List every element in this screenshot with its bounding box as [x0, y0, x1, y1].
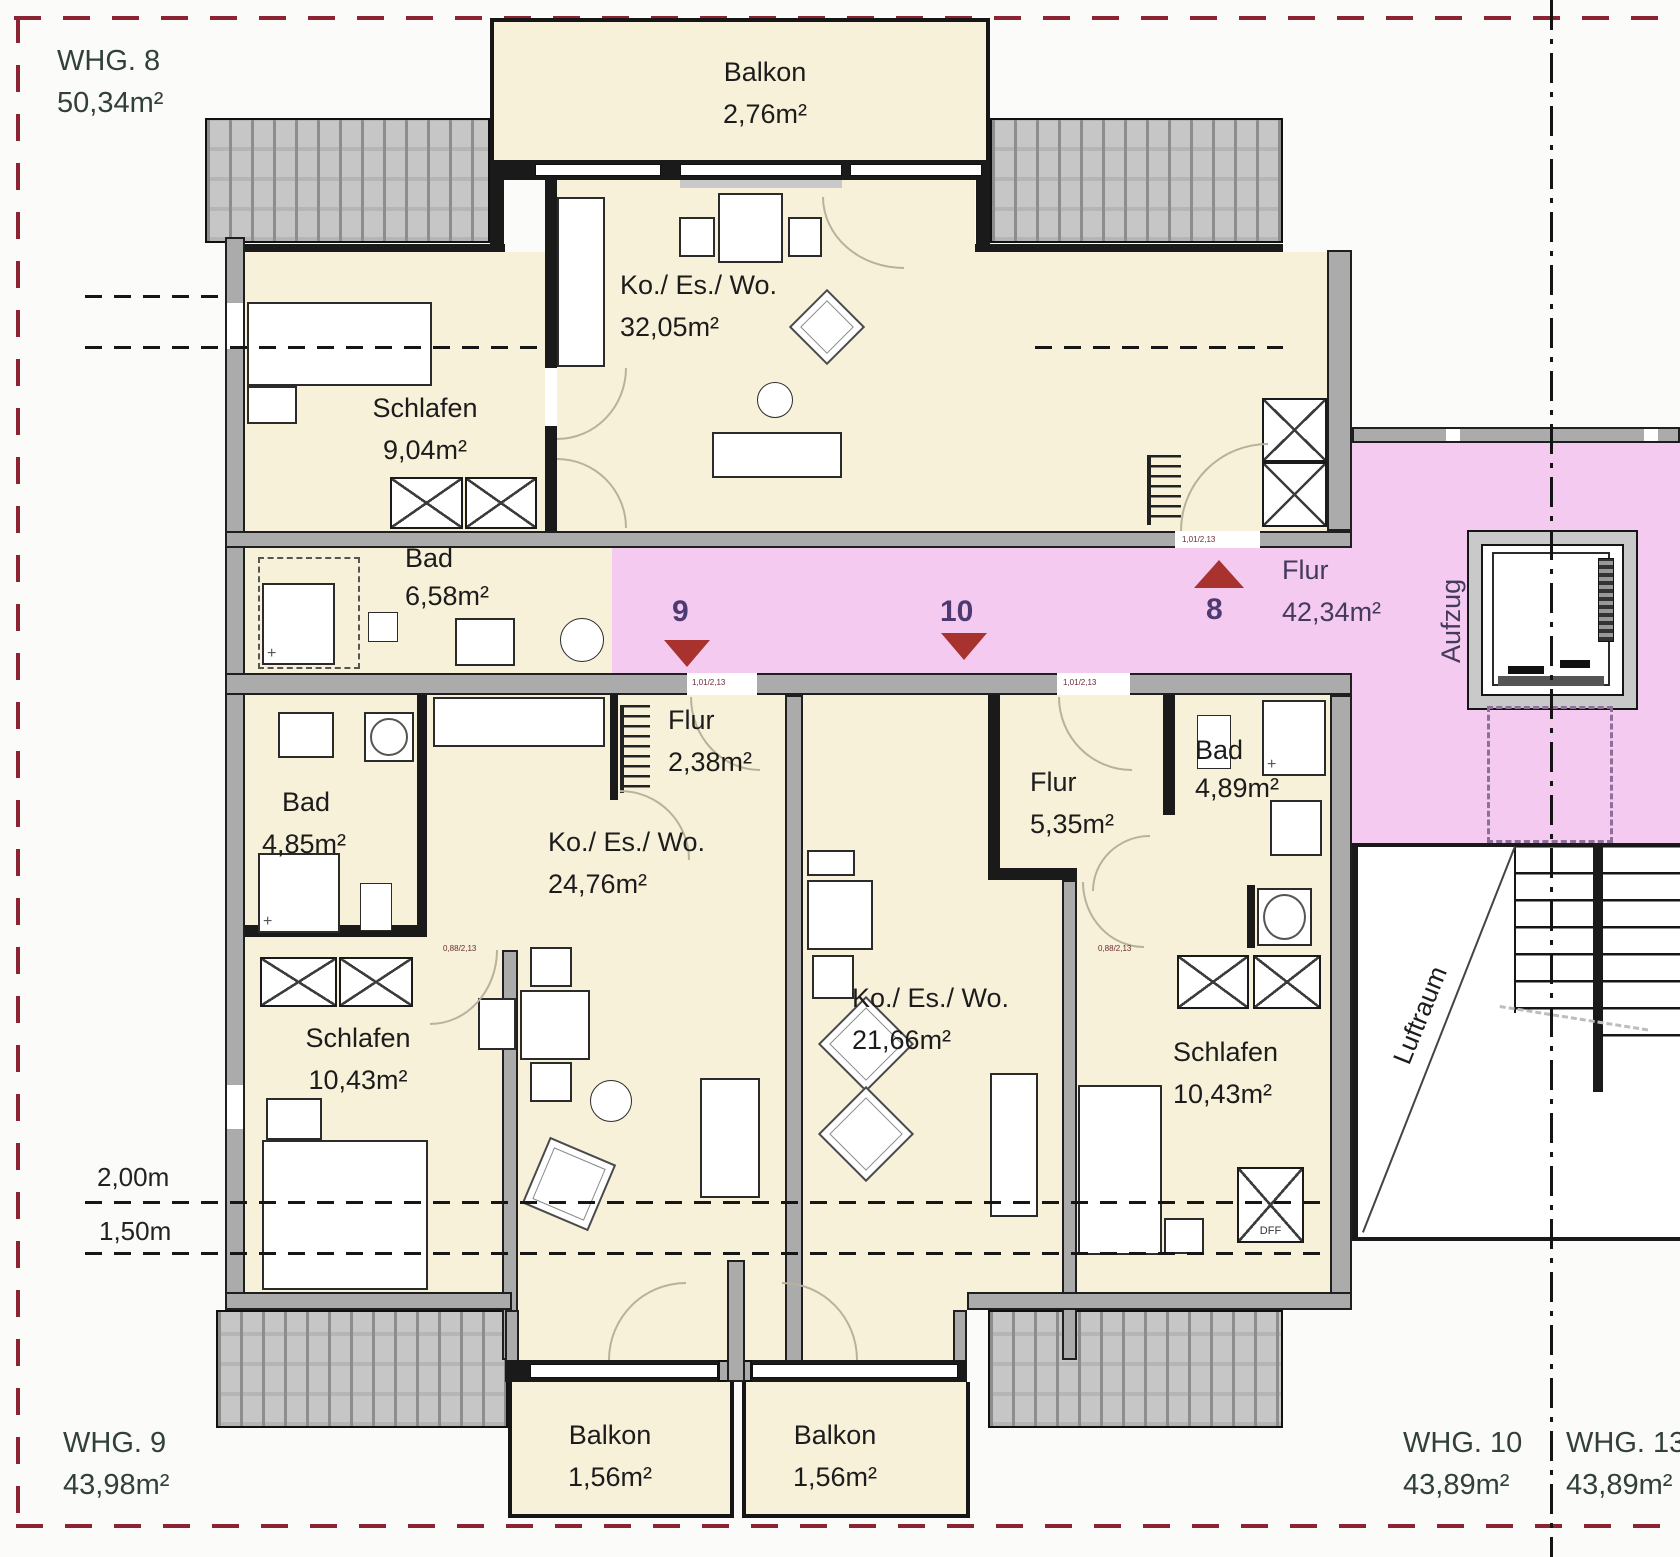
bottom-wall-right: [967, 1292, 1352, 1310]
wall-flur10-bottom: [988, 868, 1077, 880]
whg13-name: WHG. 13: [1566, 1422, 1680, 1464]
bed-whg8: [247, 302, 432, 386]
unit-marker-whg9: 9: [672, 595, 689, 629]
cabinet-whg8-2: [1262, 462, 1327, 527]
roof-hatch-bottom-left: [216, 1310, 508, 1428]
balkon-whg8-area: 2,76m²: [665, 94, 865, 136]
left-wall-window-1: [227, 303, 243, 349]
wall-koeswo10-flur10: [988, 695, 1000, 880]
left-wall-window-2: [227, 1085, 243, 1129]
flur-whg10-area: 5,35m²: [1030, 804, 1114, 846]
kitchen-block-whg10-2: [807, 880, 873, 950]
kitchen-counter-whg8: [557, 197, 605, 367]
koeswo-whg8-name: Ko./ Es./ Wo.: [620, 265, 777, 307]
schlafen-whg10-area: 10,43m²: [1173, 1074, 1278, 1116]
schlafen-whg9-label: Schlafen 10,43m²: [258, 1018, 458, 1102]
wall-flur10-bad10: [1163, 695, 1175, 815]
whg8-label: WHG. 8 50,34m²: [57, 40, 163, 124]
whg8-balcony-door-sill: [680, 180, 842, 188]
sofa-whg9: [700, 1078, 760, 1198]
bad-whg10-label: Bad 4,89m²: [1195, 732, 1279, 808]
balkon-whg10-name: Balkon: [745, 1415, 925, 1457]
koeswo-whg9-area: 24,76m²: [548, 864, 705, 906]
bottom-wall-left: [225, 1292, 512, 1310]
wall-schlafen8-koeswo: [545, 180, 557, 531]
dimension-200: 2,00m: [97, 1162, 169, 1193]
elevator-counterweight: [1598, 558, 1614, 642]
wardrobe-whg10-2: [1253, 955, 1321, 1009]
balkon-jamb-left: [490, 180, 504, 252]
roof-line-upper-2b: [1035, 346, 1283, 349]
balkon10-door: [752, 1364, 958, 1378]
balkon9-door: [530, 1364, 718, 1378]
whg8-name: WHG. 8: [57, 40, 163, 82]
radiator-flur9: [620, 705, 650, 793]
balkon-jamb-right: [976, 180, 990, 252]
stairwell-bottom-edge: [1352, 1237, 1680, 1241]
roof-line-upper-1: [85, 295, 230, 298]
stairwell-left-wall: [1352, 845, 1358, 1239]
door-label-schlafen9: 0,88/2,13: [443, 944, 476, 953]
flur-zentral-name: Flur: [1282, 550, 1381, 592]
koeswo-whg8-area: 32,05m²: [620, 307, 777, 349]
floor-lamp-whg8: [757, 382, 793, 418]
schlafen-whg8-area: 9,04m²: [340, 430, 510, 472]
koeswo-whg10-name: Ko./ Es./ Wo.: [852, 978, 1009, 1020]
door-label-whg9: 1,01/2,13: [692, 678, 725, 687]
whg9-area: 43,98m²: [63, 1464, 169, 1506]
whg9-name: WHG. 9: [63, 1422, 169, 1464]
flur-whg10-label: Flur 5,35m²: [1030, 762, 1114, 846]
boundary-bottom: [16, 1524, 1680, 1528]
balkon-whg8-label: Balkon 2,76m²: [665, 52, 865, 136]
roof-hatch-top-right: [990, 118, 1283, 243]
whg8-area: 50,34m²: [57, 82, 163, 124]
flur-zentral-area: 42,34m²: [1282, 592, 1381, 634]
sink-bad10: [1270, 800, 1322, 856]
boundary-left: [16, 16, 20, 1528]
wall-flur9-left: [610, 695, 618, 800]
stair-mid-wall: [1593, 845, 1603, 1092]
stair-flight-left: [1514, 845, 1593, 1013]
chair-whg8-right: [788, 217, 822, 257]
koeswo-whg10-label: Ko./ Es./ Wo. 21,66m²: [852, 978, 1009, 1062]
exterior-wall-left: [225, 237, 245, 1310]
right-block-wall-gap-2: [1644, 429, 1658, 441]
bad-whg9-name: Bad: [262, 782, 346, 824]
wall-bad9-right: [417, 695, 427, 935]
whg8-top-wall-left: [225, 244, 505, 252]
roof-hatch-bottom-right: [988, 1310, 1283, 1428]
whg8-window-1: [535, 164, 661, 176]
chair-whg8-left: [679, 217, 715, 257]
roof-line-150: [85, 1252, 1330, 1255]
bad-whg9-area: 4,85m²: [262, 824, 346, 866]
unit-marker-whg10: 10: [940, 595, 973, 629]
koeswo-whg9-label: Ko./ Es./ Wo. 24,76m²: [548, 822, 705, 906]
cabinet-whg8-1: [1262, 398, 1327, 462]
bed-whg10: [1078, 1085, 1162, 1255]
flur-whg9-name: Flur: [668, 700, 752, 742]
sink-bad9: [278, 712, 334, 758]
nightstand-whg8: [247, 386, 297, 424]
schlafen-whg10-name: Schlafen: [1173, 1032, 1278, 1074]
wall-whg9-whg10-divider: [785, 695, 803, 1382]
balkon-whg10-label: Balkon 1,56m²: [745, 1415, 925, 1499]
floor-lamp-whg9: [590, 1080, 632, 1122]
balkon-whg10-area: 1,56m²: [745, 1457, 925, 1499]
sofa-whg10: [990, 1073, 1038, 1217]
unit-marker-whg8: 8: [1206, 593, 1223, 627]
bad-whg8-label: Bad 6,58m²: [405, 540, 489, 616]
unit-arrow-whg9-icon: [664, 640, 710, 667]
schlafen-whg9-name: Schlafen: [258, 1018, 458, 1060]
whg8-top-wall-right: [975, 244, 1283, 252]
whg10-name: WHG. 10: [1403, 1422, 1522, 1464]
right-block-wall-gap-1: [1446, 429, 1460, 441]
schlafen-whg8-label: Schlafen 9,04m²: [340, 388, 510, 472]
balkon-divider-stub: [727, 1260, 745, 1382]
balkon-whg9-label: Balkon 1,56m²: [520, 1415, 700, 1499]
wardrobe-whg8-1: [390, 477, 463, 529]
dining-table-whg9: [520, 990, 590, 1060]
aufzug-label: Aufzug: [1431, 556, 1473, 686]
nightstand-whg9: [266, 1098, 322, 1140]
chair-whg9-left: [478, 998, 516, 1050]
unit-arrow-whg10-icon: [941, 633, 987, 660]
wardrobe-whg9-2: [339, 957, 413, 1007]
corridor-bottom-wall: [225, 673, 1352, 695]
flur-whg9-area: 2,38m²: [668, 742, 752, 784]
wardrobe-whg8-2: [465, 477, 537, 529]
wc-bad8: [368, 612, 398, 642]
roof-line-200: [85, 1201, 1330, 1204]
roof-window-whg10: DFF: [1237, 1167, 1304, 1243]
balkon-whg9-area: 1,56m²: [520, 1457, 700, 1499]
koeswo-whg9-name: Ko./ Es./ Wo.: [548, 822, 705, 864]
roof-line-upper-2a: [85, 346, 543, 349]
wall-washer-nook: [1247, 885, 1255, 948]
flur-whg9-label: Flur 2,38m²: [668, 700, 752, 784]
exterior-wall-right-upper: [1327, 250, 1352, 531]
washer-bad9: [364, 712, 414, 762]
kitchen-block-whg10-3: [812, 955, 854, 999]
bed-whg9: [262, 1140, 428, 1290]
roof-window-label: DFF: [1239, 1225, 1302, 1237]
whg10-area: 43,89m²: [1403, 1464, 1522, 1506]
floor-plan: DFF WHG. 8 50,34m² WHG. 9 43,98m² WHG. 1…: [0, 0, 1680, 1557]
unit-arrow-whg8-icon: [1194, 560, 1244, 588]
basin-bad8: [560, 618, 604, 662]
schlafen-whg9-area: 10,43m²: [258, 1060, 458, 1102]
whg9-label: WHG. 9 43,98m²: [63, 1422, 169, 1506]
koeswo-whg8-label: Ko./ Es./ Wo. 32,05m²: [620, 265, 777, 349]
building-axis-line: [1550, 0, 1553, 1557]
dimension-150: 1,50m: [99, 1216, 171, 1247]
bad-whg10-name: Bad: [1195, 732, 1279, 770]
door-label-schlafen10: 0,88/2,13: [1098, 944, 1131, 953]
door-label-whg8: 1,01/2,13: [1182, 535, 1215, 544]
dining-table-whg8: [718, 193, 783, 263]
whg10-label: WHG. 10 43,89m²: [1403, 1422, 1522, 1506]
elevator-door-leaf-1: [1508, 666, 1544, 674]
roof-hatch-top-left: [205, 118, 490, 243]
koeswo-whg10-area: 21,66m²: [852, 1020, 1009, 1062]
schlafen-whg10-label: Schlafen 10,43m²: [1173, 1032, 1278, 1116]
wall-schlafen10-left: [1062, 880, 1077, 1360]
closet-flur9: [433, 697, 605, 747]
nightstand-whg10: [1164, 1218, 1204, 1254]
bad-whg9-label: Bad 4,85m²: [262, 782, 346, 866]
door-schlafen8-opening: [545, 368, 557, 426]
exterior-wall-right-lower: [1330, 695, 1352, 1310]
whg8-window-2: [850, 164, 982, 176]
door-label-whg10: 1,01/2,13: [1063, 678, 1096, 687]
whg13-area: 43,89m²: [1566, 1464, 1680, 1506]
bad-whg8-area: 6,58m²: [405, 578, 489, 616]
balkon-whg8-name: Balkon: [665, 52, 865, 94]
wardrobe-whg10-1: [1177, 955, 1249, 1009]
balkon-whg9-name: Balkon: [520, 1415, 700, 1457]
radiator-whg8: [1147, 455, 1181, 525]
chair-whg9-bottom: [530, 1062, 572, 1102]
right-block-top-wall: [1352, 427, 1680, 443]
kitchen-block-whg10-1: [807, 850, 855, 876]
shower-bad8: [262, 583, 335, 665]
sink-bad8: [455, 618, 515, 666]
wardrobe-whg9-1: [260, 957, 337, 1007]
sofa-whg8: [712, 432, 842, 478]
bad-whg10-area: 4,89m²: [1195, 770, 1279, 808]
elevator-door-leaf-2: [1560, 660, 1590, 668]
whg13-label: WHG. 13 43,89m²: [1566, 1422, 1680, 1506]
washer-whg10: [1257, 888, 1312, 946]
bad-whg8-name: Bad: [405, 540, 489, 578]
whg8-balcony-door: [680, 164, 842, 176]
flur-zentral-label: Flur 42,34m²: [1282, 550, 1381, 634]
chair-whg9-top: [530, 947, 572, 987]
wc-bad9: [360, 883, 392, 931]
flur-whg10-name: Flur: [1030, 762, 1114, 804]
schlafen-whg8-name: Schlafen: [340, 388, 510, 430]
